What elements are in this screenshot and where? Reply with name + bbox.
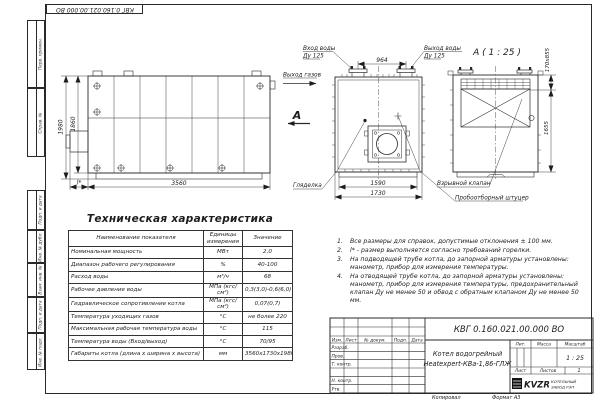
- dim-rear-height: 1655: [544, 121, 550, 135]
- note-item: 3.На подводящей трубе котла, до запорной…: [337, 256, 590, 272]
- stamp-row-utv: Утв.: [332, 387, 341, 393]
- stamp-row-razrab: Разраб.: [332, 345, 349, 351]
- stamp-product-line1: Котел водогрейный: [433, 350, 503, 358]
- kvzr-logo: [512, 378, 522, 389]
- logo-name-line2: ЗАВОД РЭП: [551, 385, 574, 390]
- drawing-sheet: КВГ 0.160.021.00.000 ВО Перв. примен. Сп…: [0, 0, 600, 400]
- table-row: Гидравлическое сопротивление котлаМПа (к…: [69, 297, 293, 311]
- stamp-row-tkontr: Т. контр.: [332, 362, 352, 368]
- table-row: Температура уходящих газов°Сне более 220: [69, 311, 293, 323]
- notes-list: 1.Все размеры для справок, допустимые от…: [337, 238, 590, 306]
- table-row: Расход водым³/ч68: [69, 271, 293, 283]
- stamp-sheets-value: 1: [577, 368, 580, 374]
- stamp-scale-label: Масштаб: [565, 342, 586, 348]
- burner-plate: [365, 126, 410, 162]
- label-water-outlet: Выход воды: [424, 46, 461, 52]
- table-row: Диапазон рабочего регулирования%40-100: [69, 259, 293, 271]
- spec-header-value: Значение: [243, 231, 293, 247]
- sampling-point: [395, 113, 402, 120]
- table-row: Номинальная мощностьМВт2,0: [69, 247, 293, 259]
- dim-burner-length: l*: [77, 180, 82, 187]
- label-sampling-fitting: Пробоотборный штуцер: [455, 196, 529, 202]
- water-flanges: [349, 66, 415, 77]
- label-sight-glass: Гляделка: [293, 183, 322, 189]
- note-item: 2.l* - размер выполняется согласно требо…: [337, 247, 590, 255]
- label-water-outlet-dn: Ду 125: [423, 54, 445, 60]
- dim-flue: 170х855: [545, 47, 551, 72]
- sight-glass-point: [363, 119, 366, 122]
- stamp-col-docnum: № докум.: [363, 337, 386, 343]
- stamp-row-nkontr: Н. контр.: [332, 378, 353, 384]
- stamp-row-prov: Пров.: [332, 353, 345, 359]
- rear-view-title: А ( 1 : 25 ): [472, 48, 521, 58]
- footer-format: Формат А3: [492, 395, 520, 400]
- stamp-sheets-label: Листов: [539, 368, 557, 374]
- rear-view: [448, 66, 556, 180]
- spec-header-row: Наименование показателя Единицы измерени…: [69, 231, 293, 247]
- dim-height-outer: 1980: [58, 119, 65, 134]
- note-item: 4.На отводящей трубе котла, до запорной …: [337, 273, 590, 305]
- stamp-doc-number: КВГ 0.160.021.00.000 ВО: [454, 325, 565, 335]
- dim-overall-width: 1730: [370, 190, 385, 197]
- stamp-col-data: Дата: [410, 337, 423, 343]
- spec-table-title: Техническая характеристика: [68, 213, 292, 225]
- label-water-inlet: Вход воды: [303, 46, 336, 52]
- side-view: [61, 71, 275, 190]
- table-row: Габариты котла (длина х ширина х высота)…: [69, 348, 293, 360]
- stamp-sheet-label: Лист: [514, 368, 527, 374]
- table-row: Температура воды (Вход/выход)°С70/95: [69, 336, 293, 348]
- stamp-col-podp: Подп.: [394, 337, 407, 343]
- dim-base-width: 1590: [370, 180, 385, 187]
- label-explosion-valve: Взрывной клапан: [437, 181, 491, 187]
- footer-copied-by: Копировал: [432, 395, 461, 400]
- dim-height-inner: 1860: [70, 116, 77, 131]
- label-water-inlet-dn: Ду 125: [302, 54, 324, 60]
- stamp-col-izm: Изм.: [332, 337, 342, 343]
- stamp-mass-label: Масса: [537, 342, 551, 348]
- spec-header-name: Наименование показателя: [69, 231, 204, 247]
- spec-table: Наименование показателя Единицы измерени…: [68, 230, 293, 361]
- logo-name-line1: КОТЕЛЬНЫЙ: [551, 379, 576, 384]
- lifting-eyes: [93, 82, 264, 172]
- table-row: Максимальная рабочая температура воды°С1…: [69, 323, 293, 335]
- stamp-col-list: Лист: [344, 337, 357, 343]
- note-item: 1.Все размеры для справок, допустимые от…: [337, 238, 590, 246]
- view-a-letter: А: [292, 109, 302, 122]
- stamp-scale-value: 1 : 25: [566, 355, 584, 362]
- stamp-product-line2: Heatexpert-КВа-1,86-ГЛЖ: [424, 360, 513, 368]
- dim-flange-spacing: 964: [376, 57, 388, 64]
- spec-header-units: Единицы измерения: [204, 231, 243, 247]
- rear-view-dimensions: [530, 75, 556, 172]
- stamp-lit-label: Лит.: [514, 342, 525, 348]
- dim-length: 3560: [171, 180, 186, 187]
- logo-abbr: KVZR: [524, 381, 550, 391]
- table-row: Рабочее давление водыМПа (кгс/см²)0,3(3,…: [69, 283, 293, 297]
- label-gas-outlet: Выход газов: [283, 73, 322, 79]
